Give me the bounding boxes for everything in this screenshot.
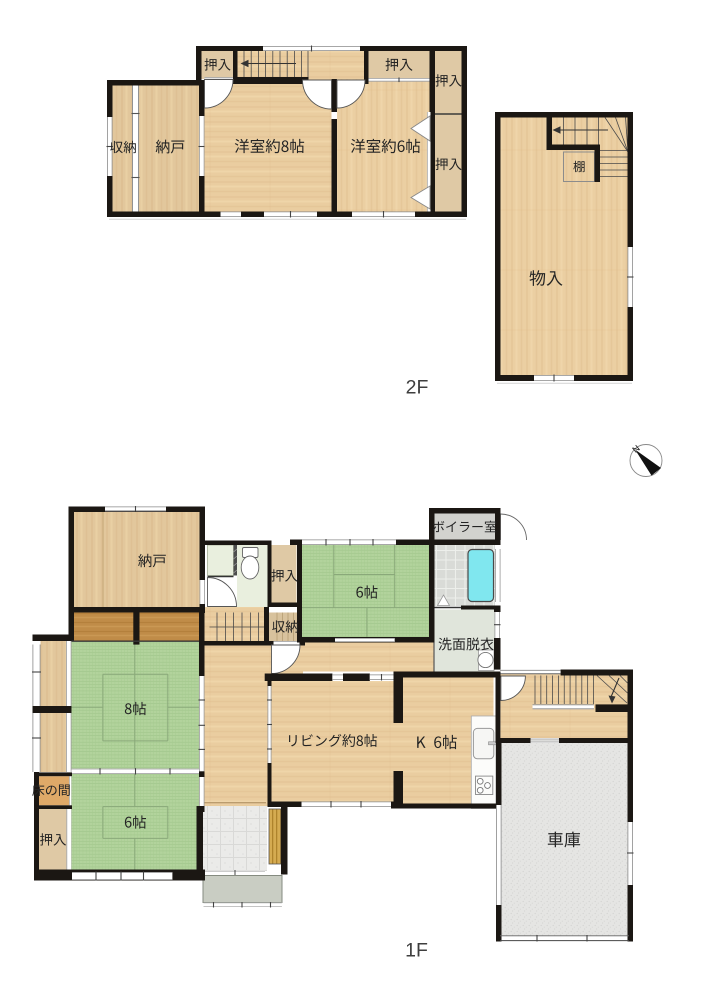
svg-text:2F: 2F xyxy=(406,377,429,399)
svg-text:1F: 1F xyxy=(405,940,428,962)
